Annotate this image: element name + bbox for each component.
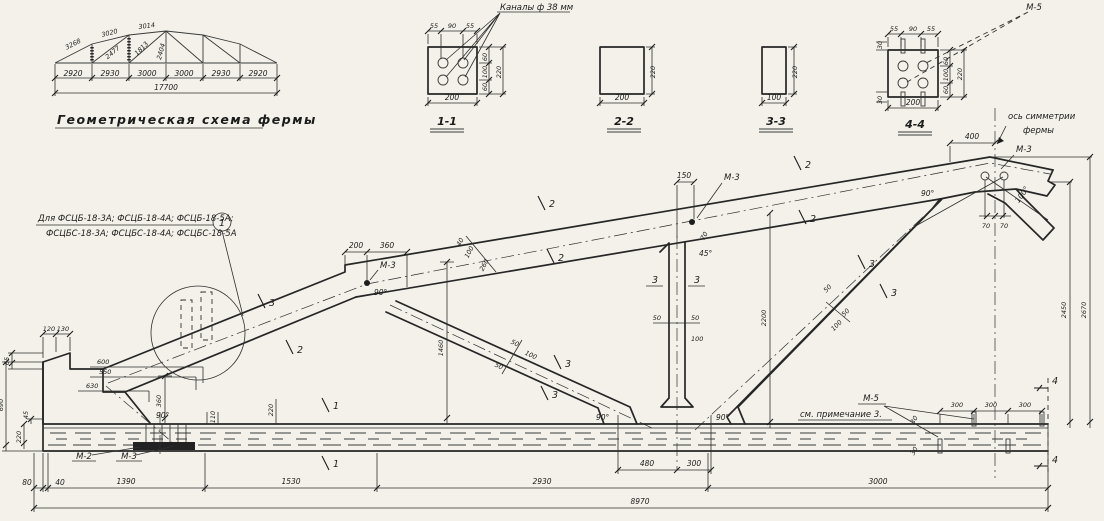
- dim-label: 55: [890, 25, 898, 33]
- truss-elevation: [43, 108, 1055, 478]
- dim-label: 50: [653, 314, 661, 322]
- pin: [901, 92, 905, 106]
- mark-label: М-5: [1026, 3, 1042, 13]
- total-dim-label: 8970: [630, 497, 649, 506]
- dim-label: 200: [349, 241, 364, 250]
- dim-label: 2930: [100, 69, 119, 78]
- joint-bolt: [689, 219, 695, 225]
- elevation-dimensions: Для ФСЦБ-18-3А; ФСЦБ-18-4А; ФСЦБ-18-5А; …: [0, 112, 1093, 512]
- dim-label: 220: [791, 66, 799, 78]
- dim-label: 220: [649, 66, 657, 78]
- note-label: см. примечание 3.: [800, 410, 882, 420]
- section-mark: 3: [869, 259, 875, 270]
- section-mark: 2: [810, 214, 816, 225]
- channel-hole: [898, 78, 908, 88]
- section-2-2: 220 200 2-2: [597, 44, 657, 132]
- dim-label: 60: [942, 86, 950, 94]
- dim-label: 550: [99, 368, 111, 376]
- dim-label: 2920: [63, 69, 82, 78]
- truss-working-drawing: 3268 3020 3014 2477 1813 2404 2920 2930 …: [0, 0, 1104, 521]
- dim-label: 360: [380, 241, 395, 250]
- applicability-note-line1: Для ФСЦБ-18-3А; ФСЦБ-18-4А; ФСЦБ-18-5А;: [37, 214, 234, 224]
- dim-label: 100: [691, 335, 703, 343]
- dim-label: 70: [1000, 222, 1008, 230]
- dim-label: 480: [640, 459, 655, 468]
- dim-label: 2404: [155, 42, 167, 60]
- dim-label: 200: [906, 98, 921, 107]
- dim-label: 1530: [281, 477, 300, 486]
- pin: [921, 39, 925, 53]
- dim-label: 55: [430, 22, 438, 30]
- dim-label: 1813: [133, 40, 150, 57]
- bottom-chord: [43, 362, 1048, 451]
- detail-circle: [151, 286, 245, 380]
- dim-label: 2930: [532, 477, 551, 486]
- dim-label: 600: [97, 358, 109, 366]
- apex-bolt: [1000, 172, 1008, 180]
- section-mark: 4: [1052, 376, 1058, 387]
- dim-label: 300: [687, 459, 702, 468]
- bearing-plate: [133, 442, 195, 450]
- dim-label: 100: [942, 69, 950, 81]
- dim-label: 300: [1019, 401, 1031, 409]
- dim-label: 200: [445, 93, 460, 102]
- dim-label: 60: [481, 53, 489, 61]
- dim-label: 2200: [760, 310, 768, 327]
- dim-label: 3014: [138, 21, 155, 31]
- angle-label: 45°: [699, 249, 713, 258]
- embedded-part: [181, 292, 212, 348]
- dim-label: 2930: [211, 69, 230, 78]
- dim-label: 2920: [248, 69, 267, 78]
- drawing-sheet: 3268 3020 3014 2477 1813 2404 2920 2930 …: [0, 0, 1104, 521]
- section-title: 1-1: [437, 115, 457, 128]
- dim-label: 100: [767, 93, 782, 102]
- dim-label: 220: [267, 404, 275, 416]
- dim-label: 50: [822, 283, 834, 295]
- dim-label: 70: [982, 222, 990, 230]
- dim-label: 40: [55, 478, 65, 487]
- dim-label: 30: [876, 41, 884, 49]
- section-mark: 2: [805, 160, 811, 171]
- dim-label: 100: [463, 245, 476, 260]
- dim-label: 3268: [64, 37, 82, 52]
- dim-label: 2450: [1060, 302, 1068, 319]
- section-mark: 3: [694, 275, 700, 286]
- axis-label-line1: ось симметрии: [1008, 112, 1076, 122]
- dim-label: 3000: [868, 477, 887, 486]
- channel-hole: [898, 61, 908, 71]
- dim-label: 30: [909, 445, 920, 456]
- geometric-scheme: 3268 3020 3014 2477 1813 2404 2920 2930 …: [52, 21, 317, 128]
- callout-number: 1: [219, 218, 225, 229]
- mark-label: М-5: [863, 394, 879, 404]
- dim-label: 150: [677, 171, 692, 180]
- dim-label: 3000: [137, 69, 156, 78]
- angle-label: 90°: [716, 413, 730, 422]
- channel-hole: [458, 58, 468, 68]
- mark-label: М-2: [76, 452, 92, 462]
- dim-label: 220: [15, 431, 23, 443]
- section-title: 4-4: [904, 118, 925, 131]
- dim-label: 65: [3, 357, 11, 365]
- dim-label: 220: [956, 68, 964, 80]
- mark-label: М-3: [724, 173, 740, 183]
- dim-label: 2477: [104, 44, 122, 61]
- section-mark: 1: [333, 401, 339, 412]
- vertical-member: [660, 242, 693, 407]
- channels-leader: [446, 12, 570, 77]
- section-mark: 4: [1052, 455, 1058, 466]
- dim-label: 300: [985, 401, 997, 409]
- dim-label: 120: [43, 325, 55, 333]
- heel-block: [43, 297, 356, 424]
- section-title: 3-3: [766, 115, 786, 128]
- dim-label: 260: [478, 258, 491, 273]
- apex-bolt: [981, 172, 989, 180]
- section-mark: 3: [269, 298, 275, 309]
- channel-hole: [458, 75, 468, 85]
- dim-label: 130: [57, 325, 69, 333]
- pin: [901, 39, 905, 53]
- angle-label: 90°: [374, 288, 388, 297]
- dim-label: 300: [951, 401, 963, 409]
- pin: [921, 92, 925, 106]
- dim-label: 90: [909, 25, 917, 33]
- dim-label: 50: [509, 338, 520, 349]
- section-3-3: 220 100 3-3: [759, 44, 799, 132]
- dim-label: 200: [615, 93, 630, 102]
- dim-label: 90: [448, 22, 456, 30]
- dim-label: 3020: [101, 27, 119, 39]
- dim-label: 100: [829, 318, 843, 332]
- dim-label: 30: [876, 96, 884, 104]
- dim-label: 45: [22, 411, 30, 419]
- diagonal-descending: [386, 301, 637, 424]
- total-dim-label: 17700: [154, 83, 178, 92]
- angle-label: 90°: [156, 411, 170, 420]
- dim-label: 50: [493, 361, 504, 372]
- dim-label: 100: [481, 66, 489, 78]
- section-mark: 1: [333, 459, 339, 470]
- mark-label: М-3: [121, 452, 137, 462]
- section-mark: 2: [549, 199, 555, 210]
- section-1-1: Каналы ф 38 мм 55 90 55 60 100 60 220 20…: [425, 3, 574, 132]
- channel-hole: [918, 78, 928, 88]
- section-mark: 3: [565, 359, 571, 370]
- dim-label: 630: [86, 382, 98, 390]
- dim-label: 50: [840, 307, 852, 319]
- channels-note: Каналы ф 38 мм: [500, 3, 574, 13]
- applicability-note-line2: ФСЦБС-18-3А; ФСЦБС-18-4А; ФСЦБС-18-5А: [46, 229, 237, 239]
- section-mark: 2: [558, 253, 564, 264]
- dim-label: 2670: [1080, 302, 1088, 319]
- dim-label: 690: [0, 399, 5, 411]
- axis-label-line2: фермы: [1023, 126, 1054, 136]
- scheme-caption: Геометрическая схема фермы: [57, 112, 317, 127]
- dim-label: 60: [942, 57, 950, 65]
- dim-label: 3000: [174, 69, 193, 78]
- dim-label: 220: [495, 66, 503, 78]
- mark-label: М-3: [380, 261, 396, 271]
- dim-label: 80: [22, 478, 32, 487]
- channel-hole: [918, 61, 928, 71]
- dim-label: 400: [965, 132, 980, 141]
- top-chord-upper-edge: [103, 157, 1053, 369]
- dim-label: 360: [155, 395, 163, 407]
- section-mark: 2: [297, 345, 303, 356]
- section-mark: 3: [552, 390, 558, 401]
- angle-label: 90°: [921, 189, 935, 198]
- dim-label: 50: [691, 314, 699, 322]
- dim-label: 55: [927, 25, 935, 33]
- dim-label: 110: [209, 411, 217, 423]
- section-mark: 3: [652, 275, 658, 286]
- mark-label: М-3: [1016, 145, 1032, 155]
- dim-label: 1390: [116, 477, 135, 486]
- section-mark: 3: [891, 288, 897, 299]
- dim-label: 1460: [437, 340, 445, 357]
- dim-label: 60: [481, 83, 489, 91]
- section-title: 2-2: [614, 115, 634, 128]
- angle-label: 90°: [596, 413, 610, 422]
- dim-label: 55: [466, 22, 474, 30]
